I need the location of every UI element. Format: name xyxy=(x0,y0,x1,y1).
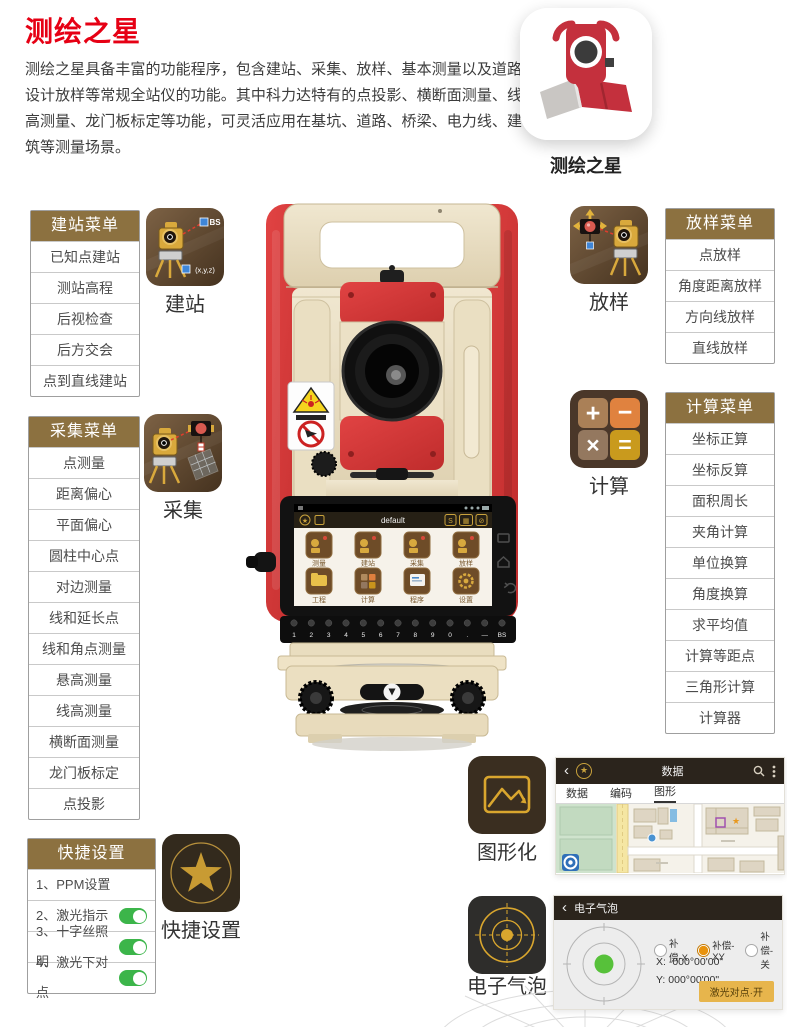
xyz-label: (x,y,z) xyxy=(195,266,215,275)
star-marker: ★ xyxy=(732,816,740,826)
menu-item: 方向线放样 xyxy=(666,301,774,332)
station-feature-icon: BS (x,y,z) xyxy=(146,208,224,286)
map-tabs: 数据 编码 图形 xyxy=(556,784,784,804)
menu-item: 直线放样 xyxy=(666,332,774,363)
bubble-screenshot-body: 补偿-X 补偿-XY 补偿-关 X: -000°00'00" Y: 000°00… xyxy=(554,920,782,1009)
calc-icon-label: 计算 xyxy=(570,470,648,499)
station-menu-header: 建站菜单 xyxy=(31,211,139,241)
key-label: 3 xyxy=(327,632,331,639)
key-label: — xyxy=(481,632,488,639)
minus-glyph: − xyxy=(618,399,633,427)
menu-item: 坐标正算 xyxy=(666,423,774,454)
key-label: 7 xyxy=(396,632,400,639)
menu-item: 龙门板标定 xyxy=(29,757,139,788)
menu-item: 求平均值 xyxy=(666,609,774,640)
key-label: 4 xyxy=(344,632,348,639)
menu-item: 坐标反算 xyxy=(666,454,774,485)
key-label: 2 xyxy=(309,632,313,639)
app-label: 建站 xyxy=(361,559,375,568)
quick-settings-menu-header: 快捷设置 xyxy=(28,839,155,869)
tab-code: 编码 xyxy=(610,785,632,803)
key-label: 8 xyxy=(413,632,417,639)
radio-comp-off: 补偿-关 xyxy=(745,929,782,971)
star-icon: ★ xyxy=(302,517,308,525)
calc-menu-header: 计算菜单 xyxy=(666,393,774,423)
total-station-app-icon xyxy=(520,8,652,140)
menu-item: 对边测量 xyxy=(29,571,139,602)
menu-item: 后视检查 xyxy=(31,303,139,334)
stakeout-feature-icon xyxy=(570,206,648,284)
bubble-screenshot-title: 电子气泡 xyxy=(574,900,618,916)
bubble-level-icon xyxy=(556,920,652,1009)
graphic-icon-label: 图形化 xyxy=(468,836,546,865)
key-label: 9 xyxy=(431,632,435,639)
collect-feature-icon xyxy=(144,414,222,492)
menu-item-label: 4、激光下对点 xyxy=(36,948,119,1008)
graphic-feature-icon xyxy=(468,756,546,834)
menu-item: 角度换算 xyxy=(666,578,774,609)
map-screenshot: ‹ ★ 数据 数据 编码 图形 xyxy=(555,757,785,875)
key-label: BS xyxy=(498,632,507,639)
menu-item: 圆柱中心点 xyxy=(29,540,139,571)
app-icon xyxy=(520,8,652,140)
menu-item: 点测量 xyxy=(29,447,139,478)
bs-label: BS xyxy=(209,218,221,227)
menu-item: 距离偏心 xyxy=(29,478,139,509)
tilt-x-value: X: -000°00'00" xyxy=(656,956,723,968)
menu-item: 线和角点测量 xyxy=(29,633,139,664)
menu-item: 单位换算 xyxy=(666,547,774,578)
radio-checked-icon xyxy=(697,944,710,957)
menu-item: 点放样 xyxy=(666,239,774,270)
key-label: 5 xyxy=(361,632,365,639)
menu-item: 角度距离放样 xyxy=(666,270,774,301)
total-station-device-photo: ★ default S ▦ ⊘ xyxy=(230,196,554,756)
menu-item: 横断面测量 xyxy=(29,726,139,757)
collect-icon-label: 采集 xyxy=(144,494,222,523)
map-canvas: ★ xyxy=(556,804,784,873)
menu-item: 已知点建站 xyxy=(31,241,139,272)
quick-settings-feature-icon xyxy=(162,834,240,912)
page-description: 测绘之星具备丰富的功能程序，包含建站、采集、放样、基本测量以及道路设计放样等常规… xyxy=(25,57,522,161)
back-icon: ‹ xyxy=(562,895,567,921)
times-glyph: × xyxy=(586,432,599,458)
toggle-on-icon xyxy=(119,970,147,986)
calc-menu: 计算菜单 坐标正算 坐标反算 面积周长 夹角计算 单位换算 角度换算 求平均值 … xyxy=(665,392,775,734)
star-icon: ★ xyxy=(576,763,592,779)
menu-item: 1、PPM设置 xyxy=(28,869,155,900)
collect-menu-header: 采集菜单 xyxy=(29,417,139,447)
quick-settings-icon-label: 快捷设置 xyxy=(141,914,261,943)
menu-item: 面积周长 xyxy=(666,485,774,516)
menu-item: 线高测量 xyxy=(29,695,139,726)
key-label: . xyxy=(466,632,468,639)
menu-item: 点投影 xyxy=(29,788,139,819)
screen-button: ⊘ xyxy=(479,518,485,525)
menu-item: 计算器 xyxy=(666,702,774,733)
key-label: 6 xyxy=(379,632,383,639)
key-label: 0 xyxy=(448,632,452,639)
app-label: 放样 xyxy=(459,559,473,568)
bubble-screenshot: ‹ 电子气泡 补偿-X 补偿-XY xyxy=(553,895,783,1010)
laser-warning-label xyxy=(288,382,334,450)
menu-item: 夹角计算 xyxy=(666,516,774,547)
collect-menu: 采集菜单 点测量 距离偏心 平面偏心 圆柱中心点 对边测量 线和延长点 线和角点… xyxy=(28,416,140,820)
bubble-feature-icon xyxy=(468,896,546,974)
search-icon xyxy=(753,765,765,777)
tab-data: 数据 xyxy=(566,785,588,803)
menu-item: 线和延长点 xyxy=(29,602,139,633)
app-label: 计算 xyxy=(361,595,375,604)
equals-glyph: = xyxy=(618,432,631,458)
screen-button: ▦ xyxy=(463,518,470,525)
page: 测绘之星 测绘之星具备丰富的功能程序，包含建站、采集、放样、基本测量以及道路设计… xyxy=(0,0,787,1027)
key-label: 1 xyxy=(292,632,296,639)
menu-item: 后方交会 xyxy=(31,334,139,365)
plus-glyph: + xyxy=(586,400,601,428)
calc-feature-icon: + − × = xyxy=(570,390,648,468)
laser-plummet-button: 激光对点·开 xyxy=(699,981,774,1002)
app-label: 采集 xyxy=(410,559,424,568)
quick-settings-menu: 快捷设置 1、PPM设置 2、激光指示 3、十字丝照明 4、激光下对点 xyxy=(27,838,156,994)
stakeout-menu-header: 放样菜单 xyxy=(666,209,774,239)
menu-item-label: 1、PPM设置 xyxy=(36,870,110,900)
radio-icon xyxy=(654,944,667,957)
app-label: 测量 xyxy=(312,560,326,568)
tab-graphic: 图形 xyxy=(654,783,676,803)
station-menu: 建站菜单 已知点建站 测站高程 后视检查 后方交会 点到直线建站 xyxy=(30,210,140,397)
bubble-screenshot-header: ‹ 电子气泡 xyxy=(554,896,782,920)
screen-title: default xyxy=(381,516,406,525)
menu-item: 点到直线建站 xyxy=(31,365,139,396)
app-label: 工程 xyxy=(312,595,326,604)
app-icon-label: 测绘之星 xyxy=(520,152,652,178)
map-screenshot-title: 数据 xyxy=(599,763,746,779)
stakeout-menu: 放样菜单 点放样 角度距离放样 方向线放样 直线放样 xyxy=(665,208,775,364)
map-screenshot-header: ‹ ★ 数据 xyxy=(556,758,784,784)
menu-item: 悬高测量 xyxy=(29,664,139,695)
menu-item: 平面偏心 xyxy=(29,509,139,540)
menu-item: 计算等距点 xyxy=(666,640,774,671)
menu-item: 三角形计算 xyxy=(666,671,774,702)
menu-item: 4、激光下对点 xyxy=(28,962,155,993)
stakeout-icon-label: 放样 xyxy=(570,286,648,315)
radio-icon xyxy=(745,944,758,957)
station-icon-label: 建站 xyxy=(146,288,224,317)
screen-button: S xyxy=(448,518,453,525)
back-icon: ‹ xyxy=(564,758,569,784)
app-label: 设置 xyxy=(459,595,473,604)
overflow-menu-icon xyxy=(772,765,776,778)
page-title: 测绘之星 xyxy=(25,10,141,50)
app-label: 程序 xyxy=(410,595,424,604)
gps-position-icon xyxy=(562,854,579,871)
menu-item: 测站高程 xyxy=(31,272,139,303)
